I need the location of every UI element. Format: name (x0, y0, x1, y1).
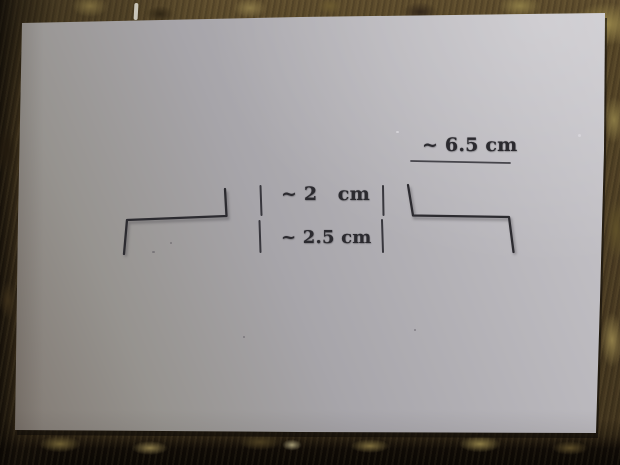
right-wire-shadow (410, 188, 516, 255)
paper-speck (152, 251, 155, 253)
measurement-label-2cm: ~ 2 cm (281, 183, 370, 205)
tick-2cm-right (383, 186, 384, 215)
paper-speck (414, 329, 416, 331)
tick-2cm-left (261, 186, 262, 215)
paper-speck (578, 134, 581, 137)
measurement-label-2-5cm: ~ 2.5 cm (281, 227, 372, 248)
paper-speck (396, 131, 399, 133)
tick-2-5cm-left (260, 221, 261, 252)
paper-speck (170, 242, 172, 244)
tick-2-5cm-right (382, 220, 383, 252)
paper-speck (243, 336, 245, 338)
photo-scene: ~ 6.5 cm ~ 2 cm ~ 2.5 cm (0, 0, 620, 465)
left-wire-shadow (126, 192, 229, 257)
measure-6-5cm-underline (411, 161, 510, 163)
measurement-label-6-5cm: ~ 6.5 cm (422, 134, 517, 156)
